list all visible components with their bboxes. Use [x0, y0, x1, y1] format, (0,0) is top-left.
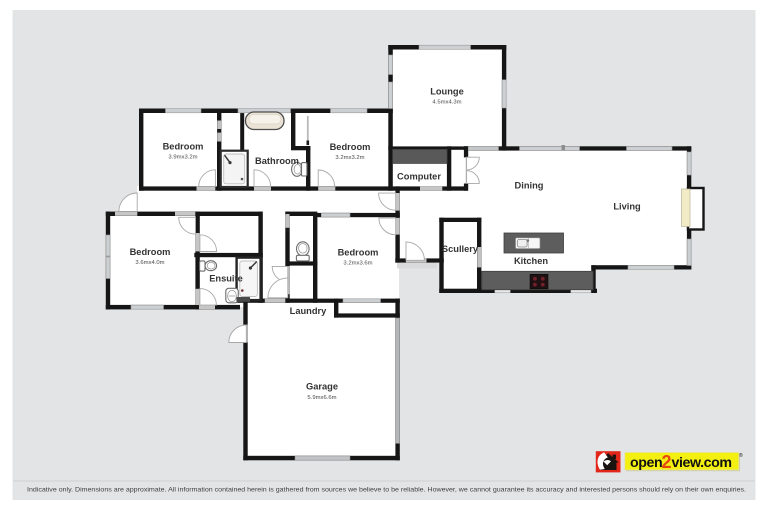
svg-text:view.com: view.com — [672, 455, 732, 471]
svg-text:2: 2 — [662, 452, 672, 472]
svg-text:3.9mx3.2m: 3.9mx3.2m — [168, 155, 197, 161]
svg-text:4.5mx4.3m: 4.5mx4.3m — [432, 100, 461, 106]
svg-text:Kitchen: Kitchen — [514, 256, 548, 266]
svg-text:Bedroom: Bedroom — [130, 247, 171, 257]
svg-text:Laundry: Laundry — [290, 306, 328, 316]
svg-text:Living: Living — [613, 202, 641, 212]
svg-text:Bedroom: Bedroom — [338, 248, 379, 258]
svg-text:Bathroom: Bathroom — [255, 156, 299, 166]
svg-text:®: ® — [739, 452, 743, 459]
svg-text:3.2mx3.6m: 3.2mx3.6m — [343, 261, 372, 267]
svg-text:3.6mx4.0m: 3.6mx4.0m — [135, 260, 164, 266]
svg-text:Dining: Dining — [515, 181, 544, 191]
svg-text:open: open — [630, 455, 662, 471]
svg-text:Bedroom: Bedroom — [330, 142, 371, 152]
svg-text:Lounge: Lounge — [430, 87, 464, 97]
svg-text:Ensuite: Ensuite — [209, 274, 243, 284]
svg-text:Scullery: Scullery — [442, 244, 479, 254]
svg-text:Garage: Garage — [306, 382, 338, 392]
svg-text:Computer: Computer — [397, 172, 441, 182]
svg-text:Indicative only. Dimensions ar: Indicative only. Dimensions are approxim… — [27, 487, 746, 494]
svg-text:Bedroom: Bedroom — [163, 142, 204, 152]
svg-text:5.9mx6.6m: 5.9mx6.6m — [307, 395, 336, 401]
svg-text:3.2mx3.2m: 3.2mx3.2m — [335, 155, 364, 161]
